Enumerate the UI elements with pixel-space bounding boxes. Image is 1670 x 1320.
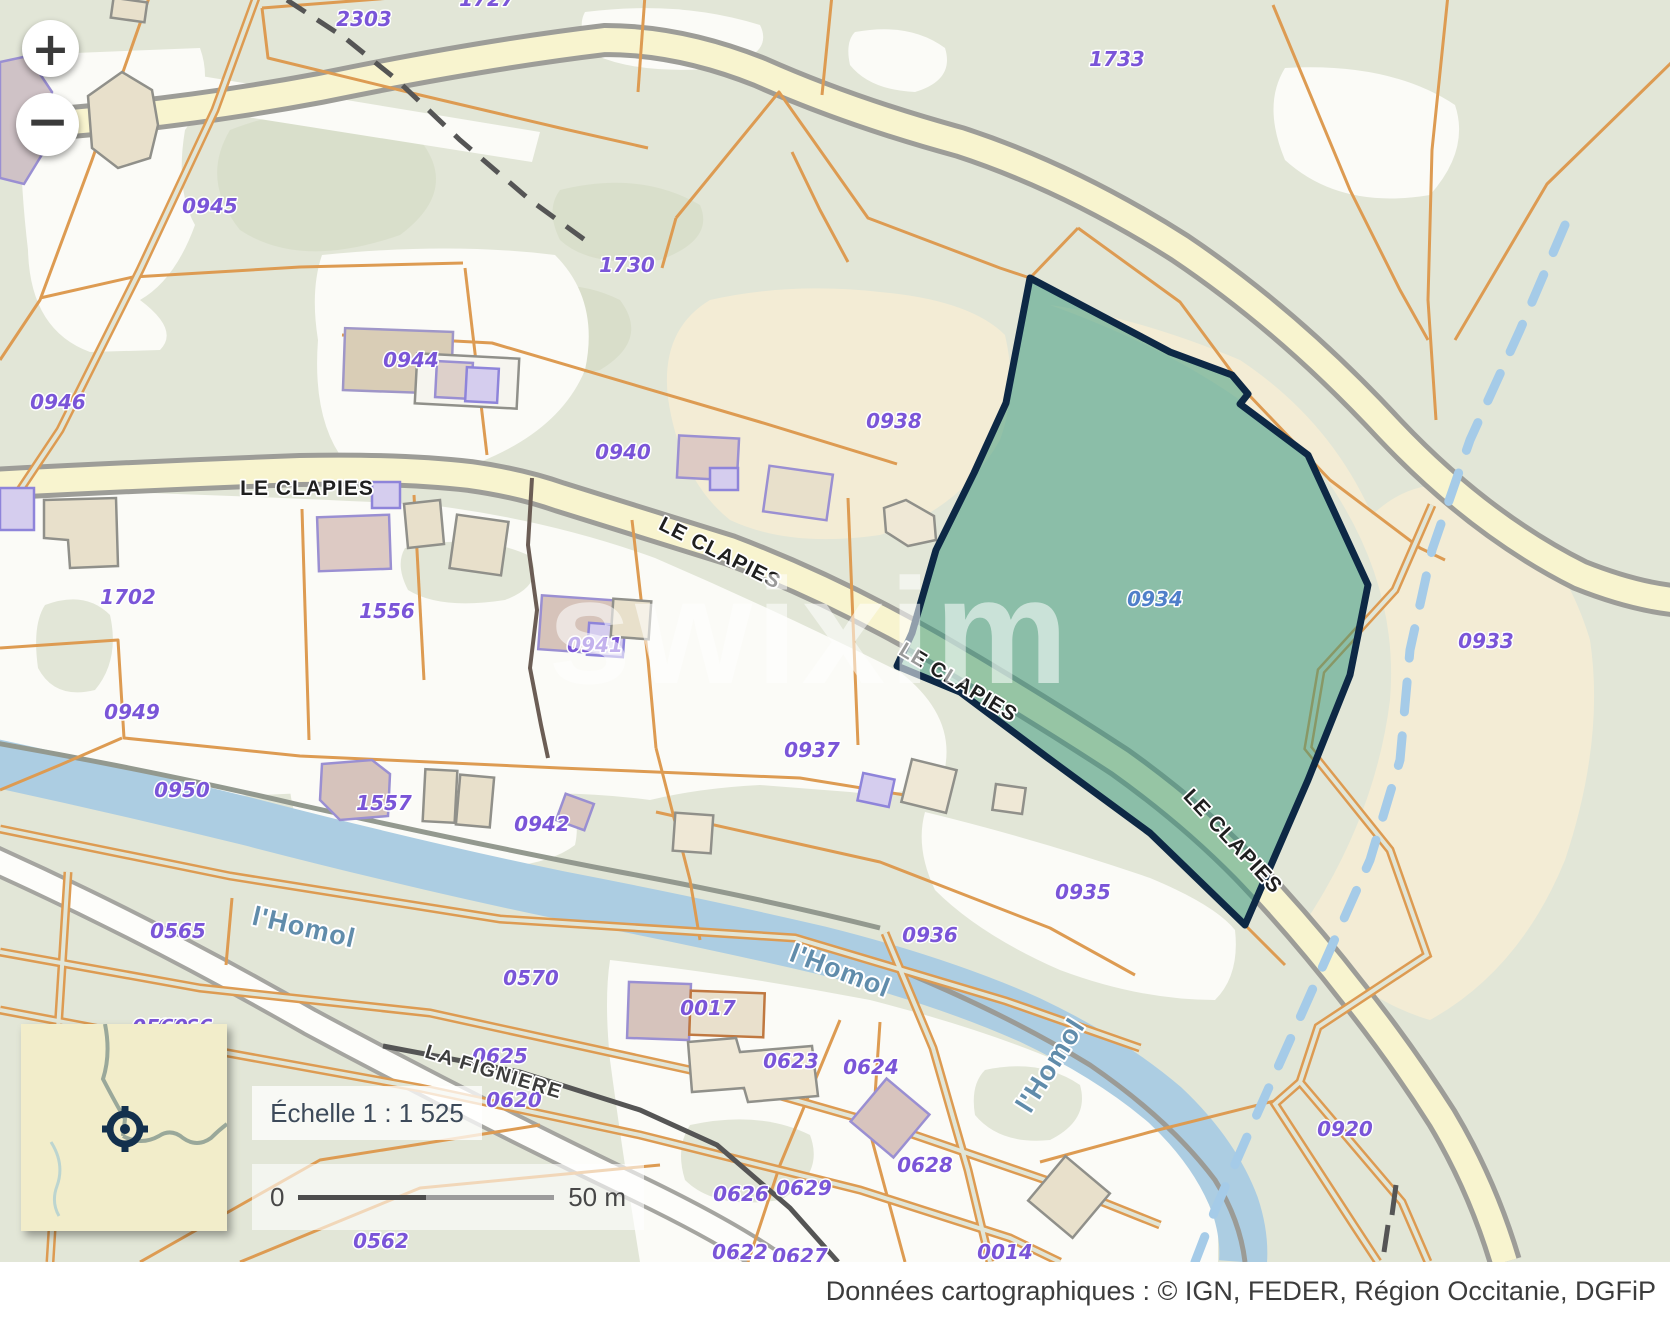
road-label-le-clapies-1: LE CLAPIES — [240, 477, 374, 500]
parcel-label-0938: 0938 — [866, 409, 922, 433]
scale-bar-end: 50 m — [568, 1182, 626, 1213]
parcel-label-0920: 0920 — [1317, 1117, 1373, 1141]
parcel-label-0565: 0565 — [150, 919, 206, 943]
scale-bar-start: 0 — [270, 1182, 284, 1213]
scale-bar-line — [298, 1195, 554, 1200]
parcel-label-0627: 0627 — [772, 1244, 828, 1262]
parcel-label-0628: 0628 — [897, 1153, 953, 1177]
parcel-label-0933: 0933 — [1458, 629, 1514, 653]
parcel-label-0017: 0017 — [680, 996, 736, 1020]
parcel-label-0937: 0937 — [784, 738, 840, 762]
scale-bar: 0 50 m — [252, 1164, 644, 1230]
parcel-label-0945: 0945 — [182, 194, 238, 218]
zoom-out-button[interactable]: − — [16, 93, 79, 156]
parcel-label-1727: 1727 — [459, 0, 515, 11]
parcel-label-0623: 0623 — [763, 1049, 819, 1073]
parcel-label-0949: 0949 — [104, 700, 160, 724]
cadastre-map-viewer: 1727230317330945173009460944094009380934… — [0, 0, 1670, 1320]
parcel-label-0936: 0936 — [902, 923, 958, 947]
parcel-label-2303: 2303 — [336, 7, 392, 31]
parcel-label-0944: 0944 — [383, 348, 439, 372]
parcel-label-0946: 0946 — [30, 390, 86, 414]
zoom-in-button[interactable]: + — [22, 20, 79, 77]
parcel-label-1557: 1557 — [356, 791, 412, 815]
attribution-text: Données cartographiques : © IGN, FEDER, … — [826, 1276, 1656, 1307]
parcel-label-1733: 1733 — [1089, 47, 1145, 71]
map-canvas[interactable]: 1727230317330945173009460944094009380934… — [0, 0, 1670, 1262]
scale-ratio-text: Échelle 1 : 1 525 — [270, 1098, 464, 1129]
parcel-label-0935: 0935 — [1055, 880, 1111, 904]
parcel-label-0562: 0562 — [353, 1229, 409, 1253]
parcel-label-0622: 0622 — [712, 1240, 768, 1262]
parcel-label-1702: 1702 — [100, 585, 156, 609]
parcel-label-1730: 1730 — [599, 253, 655, 277]
map-svg: 1727230317330945173009460944094009380934… — [0, 0, 1670, 1262]
minimap-position-icon — [102, 1106, 148, 1152]
scale-ratio: Échelle 1 : 1 525 — [252, 1086, 482, 1140]
parcel-label-0941: 0941 — [567, 633, 623, 657]
parcel-label-0570: 0570 — [503, 966, 559, 990]
minimap[interactable] — [21, 1024, 227, 1231]
parcel-label-0629: 0629 — [776, 1176, 832, 1200]
parcel-label-0940: 0940 — [595, 440, 651, 464]
parcel-label-0950: 0950 — [154, 778, 210, 802]
parcel-label-1556: 1556 — [359, 599, 415, 623]
parcel-label-0014: 0014 — [977, 1240, 1033, 1262]
parcel-label-0626: 0626 — [713, 1182, 769, 1206]
parcel-label-0942: 0942 — [514, 812, 570, 836]
attribution-bar: Données cartographiques : © IGN, FEDER, … — [0, 1262, 1670, 1320]
parcel-label-0624: 0624 — [843, 1055, 899, 1079]
parcel-label-0934-selected: 0934 — [1127, 587, 1183, 611]
